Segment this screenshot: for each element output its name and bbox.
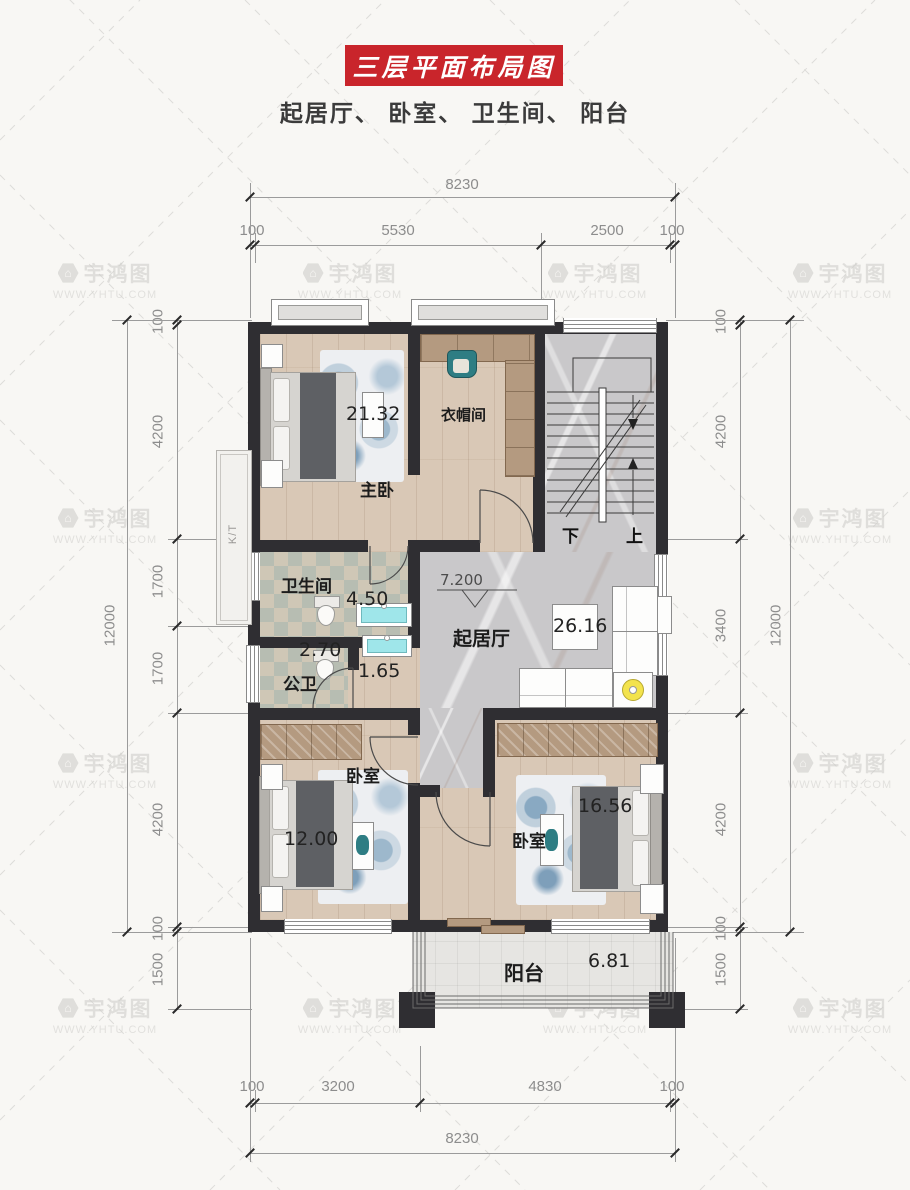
area-balcony: 6.81 [588, 950, 630, 972]
room-label-bath: 卫生间 [281, 572, 332, 597]
area-vanity: 1.65 [358, 660, 400, 682]
level-mark: 7.200 [440, 571, 483, 589]
area-bath: 4.50 [346, 588, 388, 610]
area-public-bath: 2.70 [299, 639, 341, 661]
room-label-living: 起居厅 [453, 624, 510, 651]
plan-linework [0, 0, 910, 1190]
area-master: 21.32 [346, 403, 400, 425]
stairs-up-label: 上 [626, 522, 643, 547]
area-living: 26.16 [553, 615, 607, 637]
room-label-master: 主卧 [360, 476, 394, 501]
room-label-cloak: 衣帽间 [441, 404, 486, 425]
room-label-public-bath: 公卫 [283, 670, 317, 695]
room-label-balcony: 阳台 [504, 957, 544, 986]
floor-plan-page: ⌂宇鸿图WWW.YHTU.COM⌂宇鸿图WWW.YHTU.COM⌂宇鸿图WWW.… [0, 0, 910, 1190]
room-label-bedroom1: 卧室 [346, 762, 380, 787]
area-bedroom2: 16.56 [578, 795, 632, 817]
stairs-down-label: 下 [562, 522, 579, 547]
room-label-bedroom2: 卧室 [512, 827, 546, 852]
area-bedroom1: 12.00 [284, 828, 338, 850]
